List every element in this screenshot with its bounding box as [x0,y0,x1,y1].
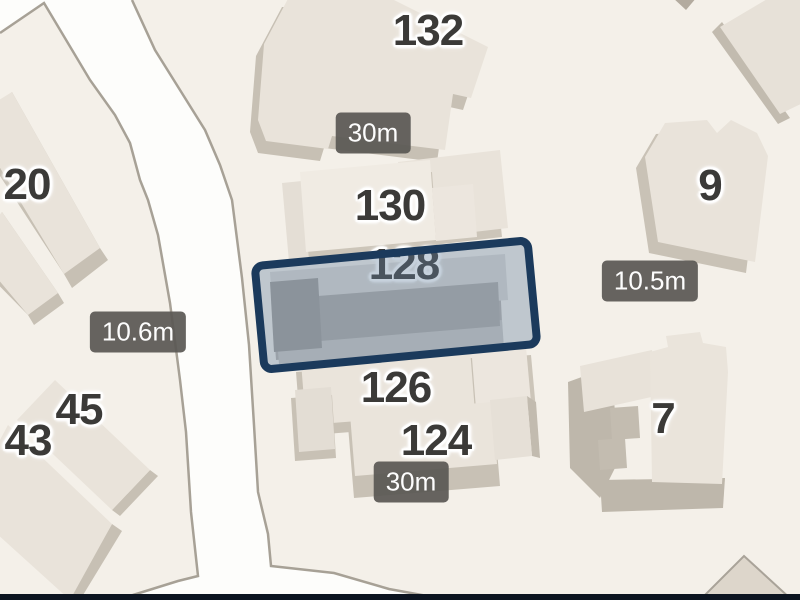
house-number-7: 7 [651,397,674,441]
house-number-132: 132 [393,9,463,53]
measurement-badge-30m-top: 30m [336,113,411,154]
house-number-43: 43 [5,419,52,463]
building-126-annex-roof [295,387,335,452]
building-124-annex-roof [490,396,532,460]
house-number-130: 130 [355,184,425,228]
building-7-notch-b [598,438,627,470]
building-130-annex [432,184,477,241]
house-number-45: 45 [56,388,103,432]
measurement-badge-10-6m: 10.6m [90,312,186,353]
house-number-20: 20 [4,163,51,207]
measurement-badge-30m-bottom: 30m [374,462,449,503]
bottom-bar [0,594,800,600]
measurement-badge-10-5m: 10.5m [602,261,698,302]
house-number-9: 9 [698,164,721,208]
map-canvas[interactable]: 132 130 128 126 124 20 45 43 9 7 30m 10.… [0,0,800,600]
house-number-124: 124 [401,419,471,463]
house-number-126: 126 [361,366,431,410]
building-7-notch-a [610,406,640,440]
